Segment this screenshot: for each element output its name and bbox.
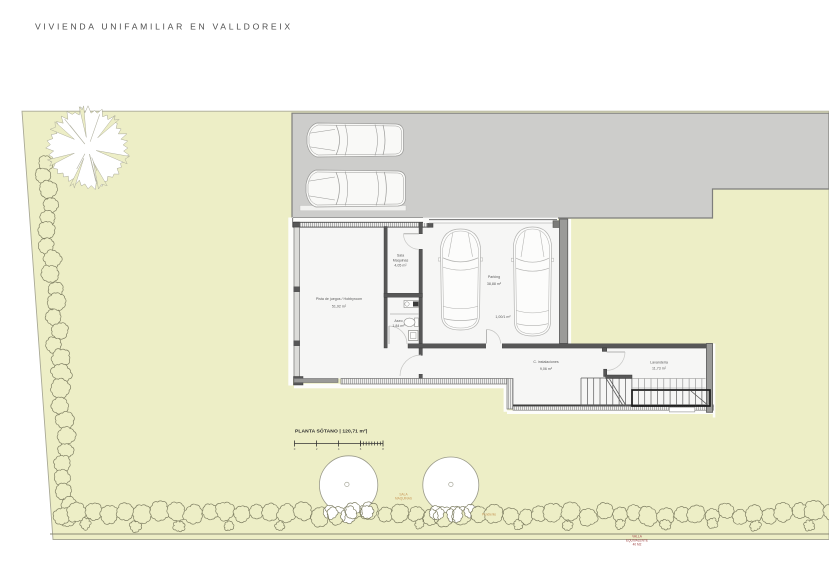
svg-text:51,92 m²: 51,92 m² [332,305,347,309]
svg-text:11,73 m²: 11,73 m² [652,367,667,371]
svg-text:Sala: Sala [397,254,404,258]
svg-text:C. instalaciones: C. instalaciones [533,360,559,364]
svg-text:38,88 m²: 38,88 m² [487,282,502,286]
svg-text:40 M2: 40 M2 [633,543,642,547]
svg-text:1,84 m²: 1,84 m² [392,324,405,328]
svg-text:Pendiente: Pendiente [482,513,497,517]
svg-text:Aseo: Aseo [394,319,402,323]
svg-text:1,00/1 m²: 1,00/1 m² [495,315,511,319]
svg-text:9,06 m²: 9,06 m² [540,367,553,371]
svg-text:VIVIENDA UNIFAMILIAR EN VALLDO: VIVIENDA UNIFAMILIAR EN VALLDOREIX [35,22,293,32]
svg-text:Maquinas: Maquinas [393,259,409,263]
svg-text:Parking: Parking [488,275,500,279]
svg-text:4,05 m²: 4,05 m² [394,264,407,268]
svg-text:Pista de juegos / Hobbyroom: Pista de juegos / Hobbyroom [316,297,362,301]
svg-text:Lavanderia: Lavanderia [650,361,668,365]
svg-text:MAQUINAS: MAQUINAS [395,497,412,501]
